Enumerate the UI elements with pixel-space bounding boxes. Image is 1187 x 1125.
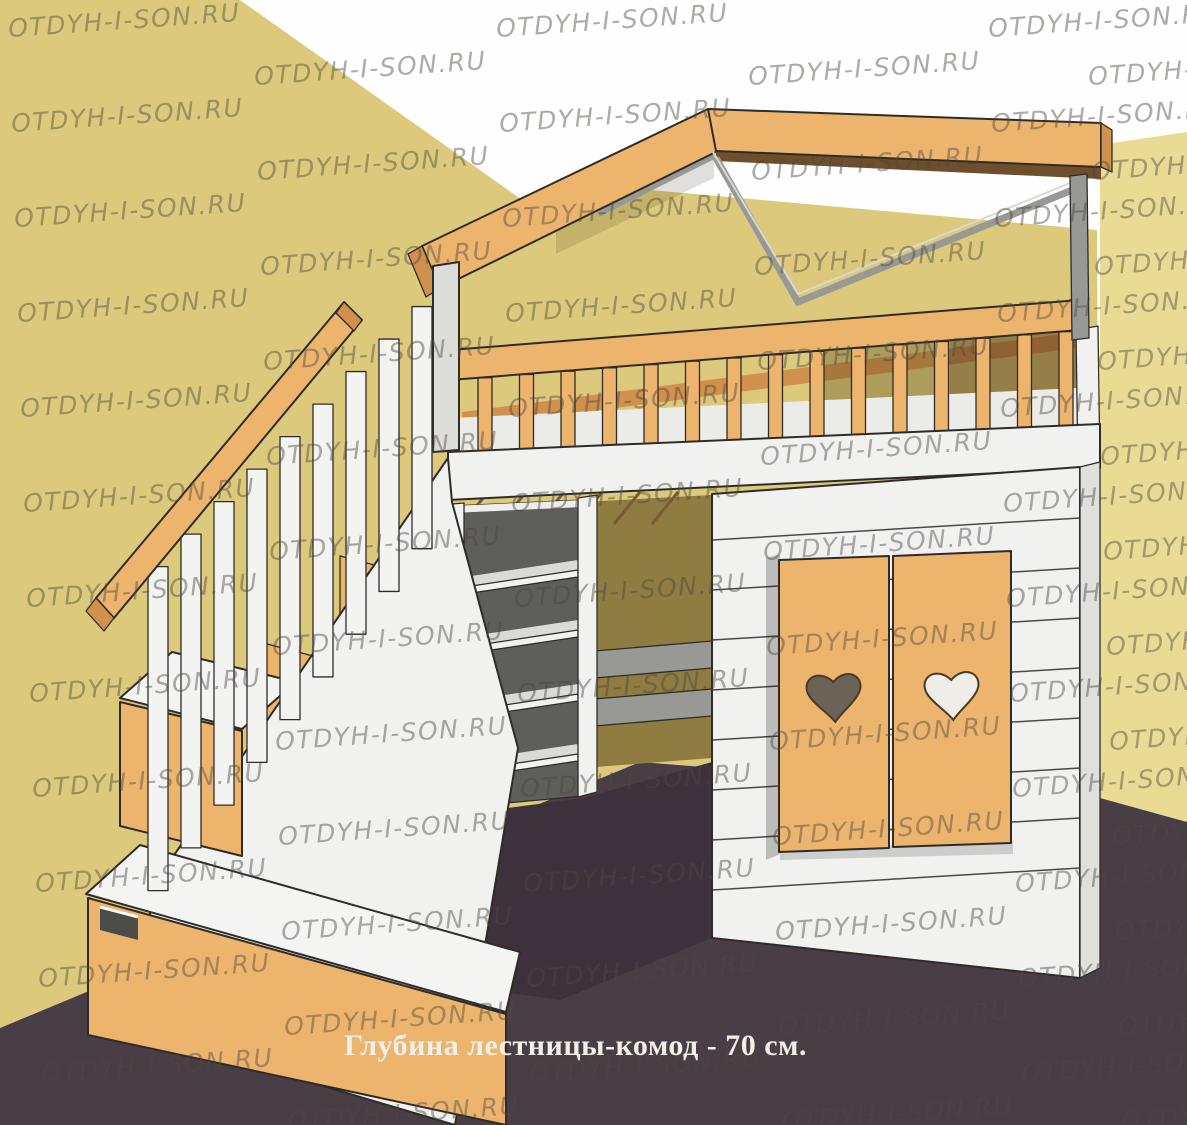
baluster: [478, 378, 492, 451]
ridge-beam-end-cap: [1101, 123, 1112, 172]
baluster: [852, 348, 866, 435]
door-shadow-left: [766, 554, 780, 860]
baluster: [520, 374, 534, 448]
stair-slat: [412, 307, 432, 549]
stair-slat: [148, 567, 168, 891]
stair-slat: [247, 469, 267, 762]
caption-depth-note: Глубина лестницы-комод - 70 см.: [344, 1029, 807, 1063]
baluster: [644, 365, 658, 444]
shelf-side-panel: [578, 495, 597, 797]
baluster: [727, 358, 741, 440]
baluster: [561, 371, 575, 447]
baluster: [810, 351, 824, 436]
stair-slat: [346, 372, 366, 635]
baluster: [935, 341, 949, 431]
corner-post-gray: [1070, 174, 1089, 340]
baluster: [976, 338, 990, 429]
baluster: [1059, 332, 1073, 426]
baluster: [769, 355, 783, 439]
stair-slat: [379, 339, 399, 591]
baluster: [893, 345, 907, 433]
stair-slat: [181, 534, 201, 848]
plank-wall-side-trim: [1080, 462, 1100, 978]
baluster: [603, 368, 617, 445]
front-left-post: [433, 262, 459, 452]
stair-slat: [313, 404, 333, 677]
double-doors: [766, 551, 1013, 860]
baluster: [1018, 335, 1032, 428]
stair-slat: [280, 437, 300, 720]
right-wall: [1100, 132, 1187, 822]
under-bed-back-wall: [583, 495, 712, 768]
furniture-render: OTDYH-I-SON.RUOTDYH-I-SON.RUOTDYH-I-SON.…: [0, 0, 1187, 1125]
stair-slat: [214, 502, 234, 806]
loft-bed-scene: [0, 0, 1187, 1125]
baluster: [686, 361, 700, 442]
